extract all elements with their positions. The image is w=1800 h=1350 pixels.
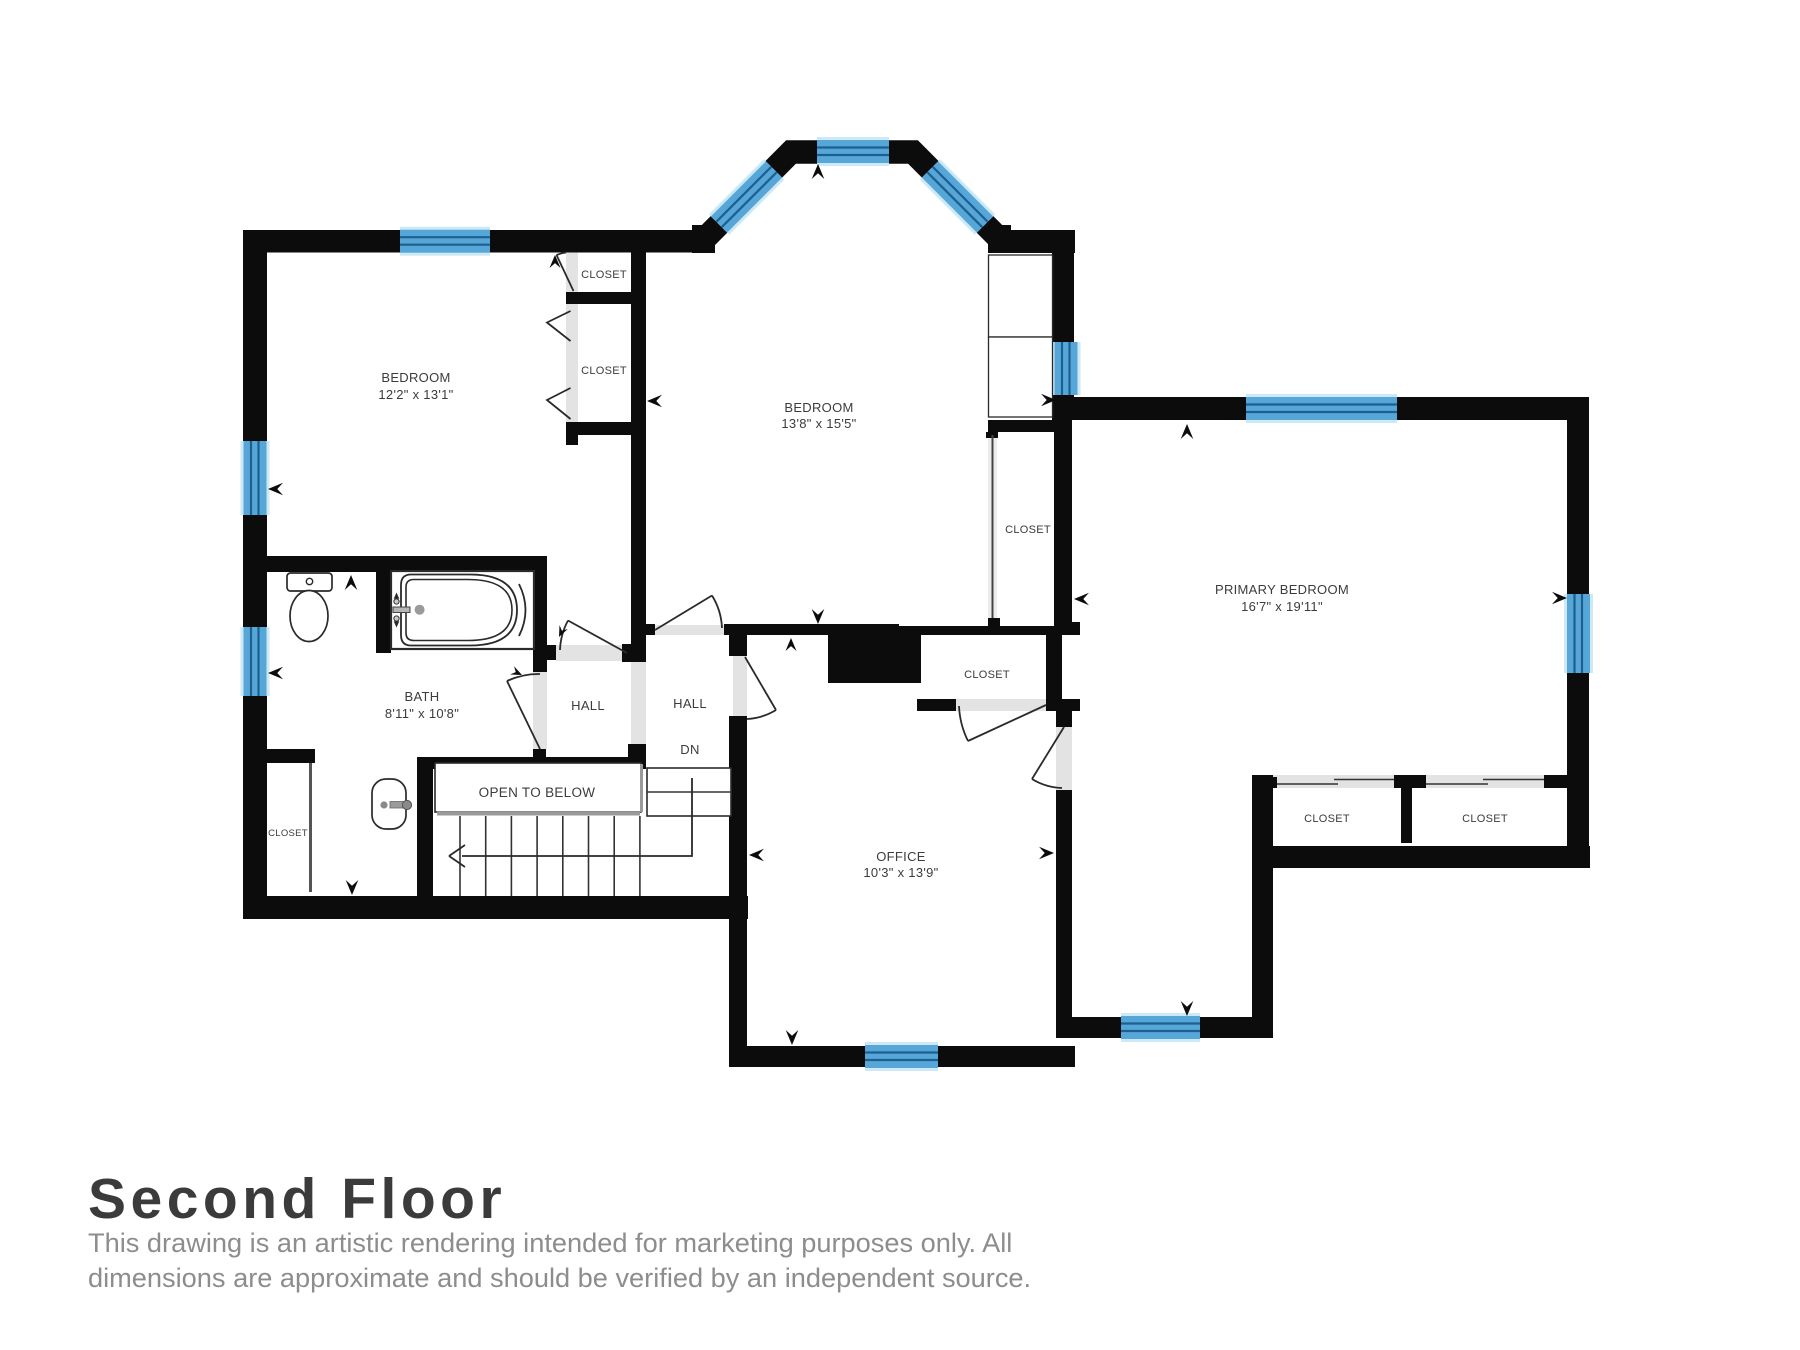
svg-text:CLOSET: CLOSET	[581, 269, 627, 281]
svg-text:16'7" x 19'11": 16'7" x 19'11"	[1241, 599, 1323, 614]
svg-text:CLOSET: CLOSET	[1462, 813, 1508, 825]
svg-text:PRIMARY BEDROOM: PRIMARY BEDROOM	[1215, 582, 1349, 597]
svg-text:BEDROOM: BEDROOM	[381, 370, 450, 385]
svg-text:HALL: HALL	[571, 698, 605, 713]
svg-text:CLOSET: CLOSET	[964, 669, 1010, 681]
svg-text:CLOSET: CLOSET	[268, 828, 308, 839]
svg-text:DN: DN	[680, 742, 699, 757]
svg-text:Second Floor: Second Floor	[88, 1167, 506, 1231]
svg-text:OFFICE: OFFICE	[876, 849, 925, 864]
svg-text:BEDROOM: BEDROOM	[784, 400, 853, 415]
svg-text:HALL: HALL	[673, 696, 707, 711]
svg-text:dimensions are approximate and: dimensions are approximate and should be…	[88, 1262, 1031, 1293]
svg-text:10'3" x 13'9": 10'3" x 13'9"	[863, 865, 938, 880]
svg-text:BATH: BATH	[405, 689, 440, 704]
svg-text:CLOSET: CLOSET	[1304, 813, 1350, 825]
svg-text:13'8" x 15'5": 13'8" x 15'5"	[781, 416, 856, 431]
svg-text:This drawing is an artistic re: This drawing is an artistic rendering in…	[88, 1227, 1012, 1258]
svg-text:12'2" x 13'1": 12'2" x 13'1"	[378, 387, 453, 402]
svg-text:CLOSET: CLOSET	[581, 365, 627, 377]
svg-text:CLOSET: CLOSET	[1005, 524, 1051, 536]
svg-text:8'11" x 10'8": 8'11" x 10'8"	[385, 706, 459, 721]
svg-text:OPEN TO BELOW: OPEN TO BELOW	[479, 785, 596, 800]
